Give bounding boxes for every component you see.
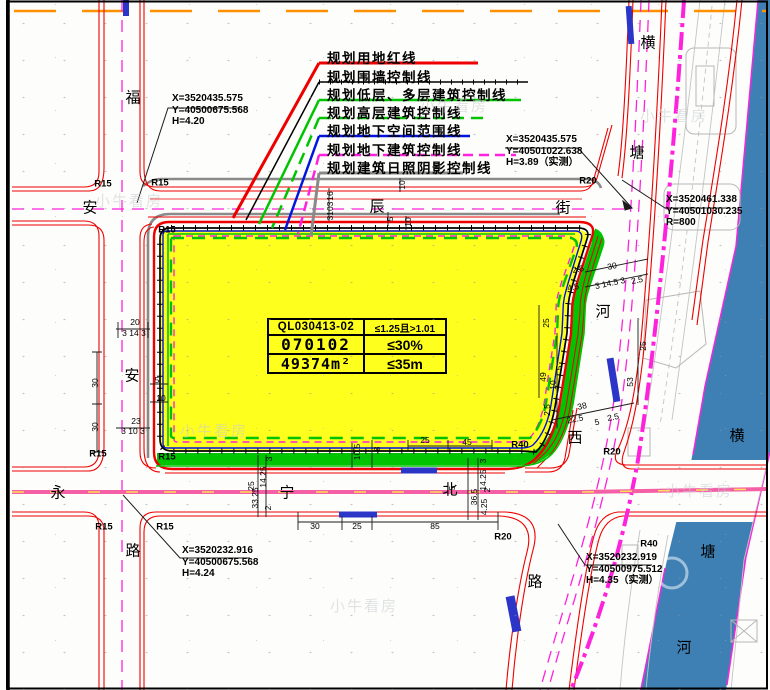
dimension-label: 10.5 xyxy=(352,444,362,461)
dimension-label: 30 xyxy=(606,260,617,272)
watermark-text: 小牛看房 xyxy=(330,595,398,616)
coordinate-callout-east: X=3520461.338 Y=40501030.235 R=800 xyxy=(666,194,742,229)
dimension-label: 8 xyxy=(372,447,382,452)
dimension-label: 25 xyxy=(541,318,551,327)
watermark-text: 小牛看房 xyxy=(420,95,488,116)
legend-item-underground-building: 规划地下建筑控制线 xyxy=(327,139,462,159)
street-name-label: 塘 xyxy=(700,541,715,562)
street-name-label: 宁 xyxy=(279,482,294,503)
dimension-label: 36.5 xyxy=(469,489,479,506)
dimension-label: 5 xyxy=(447,486,457,491)
dimension-label: 10 xyxy=(397,180,407,189)
dimension-label: 30 xyxy=(90,378,100,387)
dimension-label: 10 xyxy=(548,380,558,389)
radius-label: R15 xyxy=(94,179,111,190)
radius-label: R20 xyxy=(494,532,511,543)
coordinate-callout-se: X=3520232.919 Y=40500975.512 H=4.35（实测） xyxy=(586,552,662,587)
dimension-label: 3 14 3 xyxy=(122,328,146,338)
parcel-coverage: ≤30% xyxy=(364,335,446,354)
coordinate-callout-sw: X=3520232.916 Y=40500675.568 H=4.24 xyxy=(182,545,258,580)
dimension-label: 38 xyxy=(576,400,587,412)
dimension-label: 4.25 xyxy=(479,499,489,516)
radius-label: R20 xyxy=(579,176,596,187)
coord-x: X=3520435.575 xyxy=(172,93,243,104)
arterial-centerline xyxy=(12,489,768,492)
coord-y: Y=40500675.568 xyxy=(182,557,258,568)
coord-x: X=3520232.919 xyxy=(586,552,657,563)
coord-x: X=3520232.916 xyxy=(182,545,253,556)
dimension-label: 23 xyxy=(131,416,140,426)
dimension-label: 14.25 xyxy=(258,466,268,487)
street-name-label: 辰 xyxy=(369,196,384,217)
watermark-text: 小牛看房 xyxy=(180,420,248,441)
radius-label: R15 xyxy=(95,522,112,533)
street-name-label: 路 xyxy=(527,571,542,592)
radius-label: R15 xyxy=(151,178,168,189)
street-name-label: 塘 xyxy=(629,142,644,163)
coordinate-callout-ne: X=3520435.575 Y=40501022.638 H=3.89（实测） xyxy=(506,134,582,169)
parcel-use-code: 070102 xyxy=(268,335,364,354)
dimension-label: 3 xyxy=(478,459,488,464)
dimension-label: 53 xyxy=(625,377,635,386)
dimension-label: 3 xyxy=(264,457,274,462)
dimension-label: 30 xyxy=(310,521,319,531)
dimension-label: 45 xyxy=(462,437,471,447)
street-name-label: 河 xyxy=(676,637,691,658)
dimension-label: 20 xyxy=(130,317,139,327)
radius-label: R15 xyxy=(158,225,175,236)
radius-label: R40 xyxy=(511,440,528,451)
dimension-label: 3 10 3 xyxy=(121,426,145,436)
coord-h: H=4.24 xyxy=(182,568,215,579)
dimension-label: 10 xyxy=(156,393,165,403)
coord-x: X=3520435.575 xyxy=(506,134,577,145)
street-name-label: 横 xyxy=(729,425,744,446)
coord-h: H=3.89（实测） xyxy=(506,157,579,168)
dimension-label: 10 xyxy=(325,206,335,215)
dimension-label: 10 xyxy=(403,217,413,226)
parcel-info-table: QL030413-02 ≤1.25且>1.01 070102 ≤30% 4937… xyxy=(267,318,447,374)
coordinate-callout-nw: X=3520435.575 Y=40500675.568 H=4.20 xyxy=(172,93,248,128)
dimension-label: 25 xyxy=(638,341,648,350)
coord-x: X=3520461.338 xyxy=(666,194,737,205)
dimension-label: 5 xyxy=(155,375,160,385)
parcel-area: 49374m² xyxy=(268,354,364,373)
radius-label: R15 xyxy=(158,452,175,463)
planning-map: 规划用地红线 规划围墙控制线 规划低层、多层建筑控制线 规划高层建筑控制线 规划… xyxy=(0,0,770,690)
radius-label: R20 xyxy=(603,447,620,458)
watermark-text: 小牛看房 xyxy=(640,105,708,126)
dimension-label: 25 xyxy=(246,481,256,490)
coord-y: Y=40500675.568 xyxy=(172,105,248,116)
coord-y: Y=40501030.235 xyxy=(666,206,742,217)
dimension-label: 5 xyxy=(554,366,564,371)
radius-label: R15 xyxy=(156,522,173,533)
legend-item-wall-control: 规划围墙控制线 xyxy=(327,66,432,86)
dimension-label: 2 xyxy=(482,488,492,493)
dimension-label: 85 xyxy=(430,521,439,531)
watermark-text: 小牛看房 xyxy=(95,190,163,211)
coord-h: H=4.35（实测） xyxy=(586,575,659,586)
radius-label: R15 xyxy=(89,449,106,460)
street-name-label: 河 xyxy=(595,301,610,322)
parcel-far: ≤1.25且>1.01 xyxy=(364,319,446,335)
street-name-label: 福 xyxy=(125,87,140,108)
parcel-code: QL030413-02 xyxy=(268,319,364,335)
dimension-label: 16 xyxy=(325,191,335,200)
coord-y: Y=40500975.512 xyxy=(586,564,662,575)
legend-item-land-red-line: 规划用地红线 xyxy=(327,47,417,67)
street-name-label: 街 xyxy=(555,197,570,218)
street-name-label: 安 xyxy=(124,365,139,386)
dimension-label: 30 xyxy=(90,422,100,431)
dimension-label: 3 xyxy=(325,216,335,221)
coord-h: H=4.20 xyxy=(172,116,205,127)
street-name-label: 路 xyxy=(125,540,140,561)
dimension-label: 25 xyxy=(352,521,361,531)
street-name-label: 横 xyxy=(640,32,655,53)
street-name-label: 永 xyxy=(50,482,65,503)
coord-r: R=800 xyxy=(666,217,696,228)
dimension-label: 5 xyxy=(385,217,395,222)
street-name-label: 西 xyxy=(567,427,582,448)
watermark-text: 小牛看房 xyxy=(665,480,733,501)
legend-item-underground-space: 规划地下空间范围线 xyxy=(327,120,462,140)
dimension-label: 2 xyxy=(263,506,273,511)
radius-label: R40 xyxy=(640,539,657,550)
dimension-label: 49 xyxy=(538,372,548,381)
legend-item-sunshadow-control: 规划建筑日照阴影控制线 xyxy=(327,157,492,177)
dimension-label: 2.5 xyxy=(542,404,552,416)
dimension-label: 25 xyxy=(420,435,429,445)
parcel-height-limit: ≤35m xyxy=(364,354,446,373)
coord-y: Y=40501022.638 xyxy=(506,146,582,157)
